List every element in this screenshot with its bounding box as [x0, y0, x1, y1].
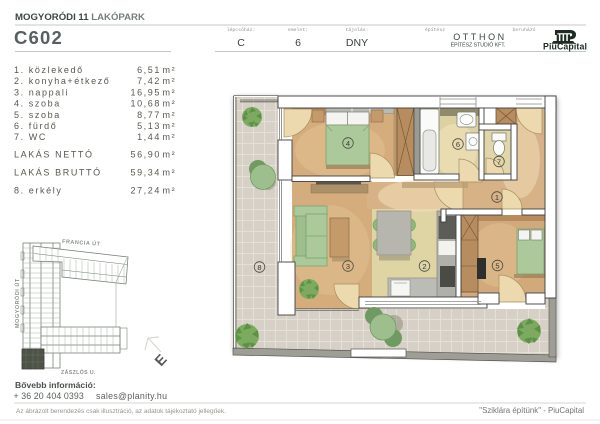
svg-text:5: 5: [495, 262, 499, 271]
svg-text:8: 8: [257, 263, 261, 272]
svg-text:PiuCapital: PiuCapital: [543, 42, 587, 52]
svg-text:3: 3: [346, 262, 350, 271]
svg-text:56,90: 56,90: [130, 149, 161, 159]
svg-text:m²: m²: [163, 132, 177, 142]
svg-text:m²: m²: [163, 99, 177, 109]
svg-text:tájolás:: tájolás:: [345, 27, 368, 33]
svg-text:ZÁSZLÓS U.: ZÁSZLÓS U.: [61, 368, 96, 376]
svg-text:m²: m²: [163, 186, 177, 196]
svg-text:beruházó: beruházó: [512, 27, 535, 33]
svg-text:OTTHON: OTTHON: [453, 32, 507, 42]
svg-text:4. szoba: 4. szoba: [14, 99, 61, 109]
svg-text:10,68: 10,68: [130, 99, 161, 109]
svg-text:59,34: 59,34: [130, 168, 161, 178]
svg-text:8. erkély: 8. erkély: [14, 186, 62, 196]
svg-text:2. konyha+étkező: 2. konyha+étkező: [14, 76, 110, 86]
svg-text:FRANCIA ÚT: FRANCIA ÚT: [62, 238, 101, 248]
svg-text:DNY: DNY: [346, 37, 368, 49]
svg-text:sales@planity.hu: sales@planity.hu: [96, 391, 167, 401]
svg-text:"Sziklára építünk" - PiuCapita: "Sziklára építünk" - PiuCapital: [479, 406, 584, 415]
svg-text:2: 2: [422, 262, 426, 271]
svg-text:m²: m²: [163, 121, 177, 131]
svg-text:építész: építész: [425, 27, 445, 33]
svg-text:emelet:: emelet:: [288, 27, 308, 33]
svg-text:MOGYORÓDI ÚT: MOGYORÓDI ÚT: [13, 278, 21, 328]
svg-text:7. WC: 7. WC: [14, 132, 47, 142]
svg-text:lépcsőház:: lépcsőház:: [227, 27, 256, 33]
svg-text:6,51: 6,51: [137, 65, 161, 75]
svg-text:5,13: 5,13: [137, 121, 161, 131]
svg-text:7: 7: [497, 158, 501, 167]
svg-text:8,77: 8,77: [137, 110, 161, 120]
svg-text:5. szoba: 5. szoba: [14, 110, 61, 120]
svg-text:4: 4: [346, 139, 350, 148]
svg-text:7,42: 7,42: [137, 76, 161, 86]
svg-text:3. nappali: 3. nappali: [14, 87, 69, 97]
svg-text:1. közlekedő: 1. közlekedő: [14, 65, 84, 75]
svg-text:m²: m²: [163, 110, 177, 120]
svg-text:16,95: 16,95: [130, 87, 161, 97]
svg-text:m²: m²: [163, 76, 177, 86]
svg-text:Bővebb információ:: Bővebb információ:: [15, 380, 96, 390]
svg-text:6. fürdő: 6. fürdő: [14, 121, 57, 131]
svg-text:LAKÁS BRUTTÓ: LAKÁS BRUTTÓ: [14, 168, 102, 178]
svg-text:6: 6: [295, 37, 301, 49]
svg-text:1,44: 1,44: [137, 132, 161, 142]
svg-text:m²: m²: [163, 87, 177, 97]
svg-text:LAKÁS NETTÓ: LAKÁS NETTÓ: [14, 149, 94, 159]
svg-text:+ 36 20 404 0393: + 36 20 404 0393: [14, 391, 84, 401]
svg-text:m²: m²: [163, 168, 177, 178]
svg-text:C: C: [237, 37, 245, 49]
svg-text:27,24: 27,24: [130, 186, 161, 196]
svg-text:ÉPÍTÉSZ STUDIÓ KFT.: ÉPÍTÉSZ STUDIÓ KFT.: [451, 42, 506, 49]
svg-text:MOGYORÓDI 11 LAKÓPARK: MOGYORÓDI 11 LAKÓPARK: [15, 11, 145, 23]
svg-text:C602: C602: [14, 27, 63, 48]
svg-text:m²: m²: [163, 65, 177, 75]
svg-text:Az ábrázolt berendezés csak il: Az ábrázolt berendezés csak illusztráció…: [16, 408, 226, 415]
svg-text:6: 6: [456, 140, 460, 149]
svg-text:m²: m²: [163, 149, 177, 159]
svg-text:E: E: [152, 352, 171, 370]
svg-text:1: 1: [495, 193, 499, 202]
